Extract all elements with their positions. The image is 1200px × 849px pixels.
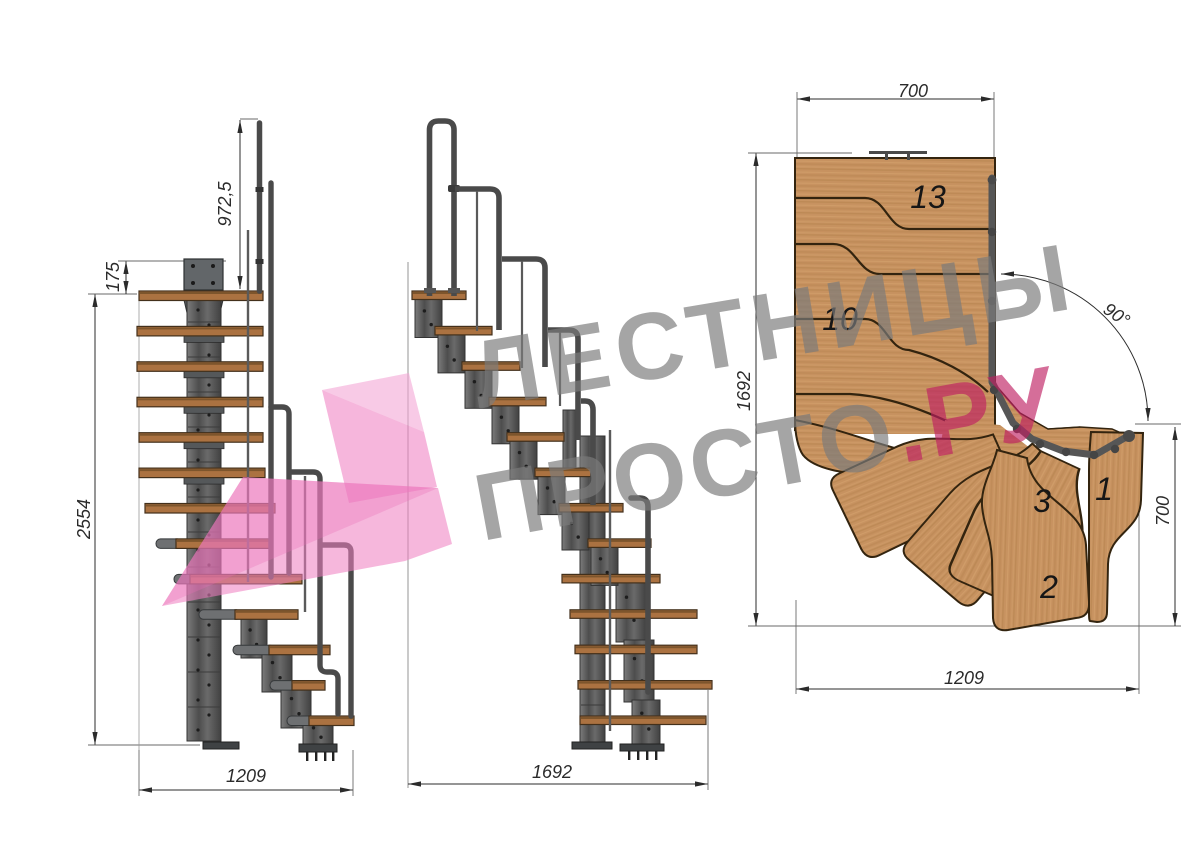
svg-text:13: 13 [910,179,946,215]
svg-text:1209: 1209 [226,766,266,786]
svg-text:90°: 90° [1100,299,1134,331]
svg-text:1692: 1692 [532,762,572,782]
svg-text:175: 175 [103,261,123,292]
svg-text:2: 2 [1039,569,1058,605]
svg-text:2554: 2554 [74,499,94,540]
svg-text:700: 700 [898,81,928,101]
svg-text:1209: 1209 [944,668,984,688]
svg-text:1: 1 [1095,471,1113,507]
svg-text:972,5: 972,5 [215,180,235,226]
svg-text:3: 3 [1033,483,1051,519]
svg-text:700: 700 [1153,496,1173,526]
